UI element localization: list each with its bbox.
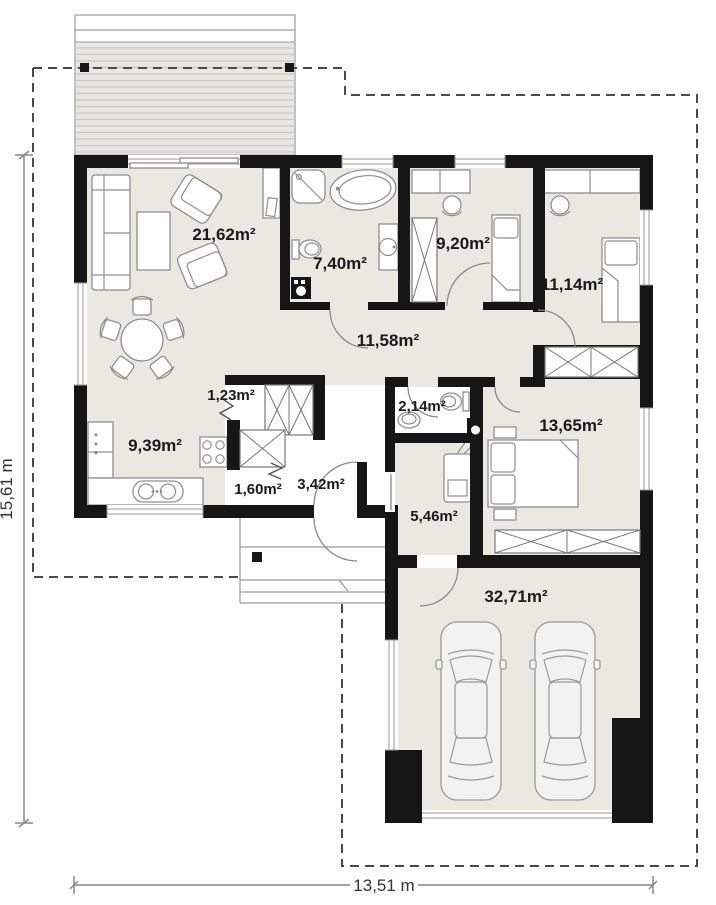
wardrobe [495, 530, 640, 553]
wardrobe [240, 430, 285, 467]
room-label-living-room: 21,62m² [192, 225, 256, 244]
window [74, 283, 87, 385]
room-label-closet: 1,23m² [207, 387, 255, 404]
room-label-garage: 32,71m² [484, 587, 548, 606]
bathroom-sink [379, 224, 398, 270]
wardrobe [545, 347, 638, 377]
deck-post [285, 63, 294, 72]
wardrobe [412, 218, 437, 302]
room-label-corridor: 3,42m² [297, 476, 345, 493]
floor-plan-page: * * * [0, 0, 716, 900]
floor-plan: * * * [0, 0, 716, 900]
garage-gate [422, 810, 612, 823]
nightstand [494, 427, 516, 438]
car-icon [530, 622, 600, 800]
shower [292, 170, 325, 203]
deck-post [80, 63, 89, 72]
dimension-width-label: 13,51 m [353, 876, 414, 895]
single-bed [492, 215, 520, 302]
utility-door-opening [385, 472, 395, 512]
car-icon [436, 622, 506, 800]
kitchen-sink [133, 481, 183, 502]
terrace-door [128, 155, 240, 168]
garage-door-opening [417, 555, 457, 568]
room-label-wc: 2,14m² [398, 398, 446, 415]
wardrobe [265, 385, 313, 435]
room-label-utility: 5,46m² [410, 508, 458, 525]
washing-machine [291, 277, 311, 299]
window [342, 155, 393, 168]
coffee-table [137, 212, 170, 270]
deck-terrace [75, 15, 295, 155]
chimney-flue-icon [471, 426, 480, 435]
window [455, 155, 505, 168]
dimension-height-label: 15,61 m [0, 458, 16, 519]
double-bed [488, 427, 578, 520]
room-label-hall: 11,58m² [357, 331, 420, 350]
front-door-opening [314, 505, 357, 518]
room-label-bedroom-small: 11,14m² [541, 275, 604, 294]
dimension-bottom: 13,51 m [70, 876, 657, 895]
svg-text:*: * [94, 450, 98, 461]
dimension-left: 15,61 m [0, 151, 33, 827]
window [640, 210, 653, 285]
room-label-kitchen: 9,39m² [128, 436, 182, 455]
window [640, 408, 653, 490]
desk [537, 170, 640, 193]
entry-porch [240, 518, 385, 603]
room-label-bedroom-main: 13,65m² [539, 416, 603, 435]
window [107, 505, 203, 518]
sofa [92, 175, 130, 290]
window [385, 640, 398, 750]
single-bed [602, 238, 640, 322]
room-label-bathroom: 7,40m² [313, 254, 367, 273]
tv-cabinet [263, 168, 280, 218]
room-label-pantry: 1,60m² [234, 481, 282, 498]
nightstand [494, 509, 516, 520]
stove [200, 437, 227, 467]
desk [412, 170, 470, 193]
porch-post [252, 552, 262, 562]
room-label-kids-room: 9,20m² [436, 234, 490, 253]
